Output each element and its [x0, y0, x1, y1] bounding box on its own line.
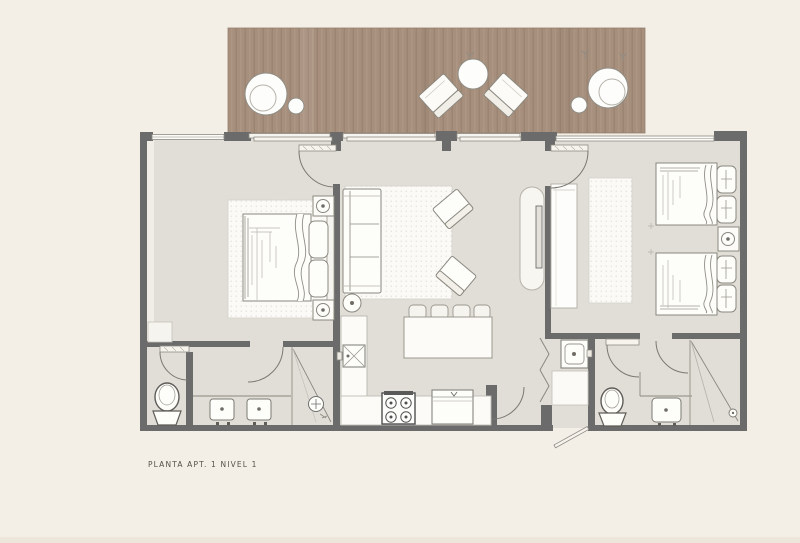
wall-tv — [536, 206, 542, 268]
dining-table — [404, 317, 492, 358]
double-bed — [243, 214, 334, 302]
kitchen-cabinet — [432, 390, 473, 424]
washing-machine — [561, 340, 592, 368]
pillow — [717, 166, 736, 193]
floor-plan-drawing — [0, 0, 800, 543]
page-edge — [0, 537, 800, 543]
linen-closet — [148, 322, 172, 342]
floor-plan: PLANTA APT. 1 NIVEL 1 — [0, 0, 800, 543]
pillow — [309, 260, 328, 297]
floor-lamp — [343, 294, 361, 312]
toilet — [153, 383, 181, 425]
bedroom-right-rug — [589, 178, 632, 303]
deck-table-right — [588, 68, 628, 108]
deck-terrace — [228, 28, 645, 133]
utility-shelf — [552, 371, 588, 405]
deck-stool-right — [571, 97, 587, 113]
stove — [382, 391, 415, 424]
window-left-bedroom — [152, 135, 224, 140]
sliding-door-living-1 — [343, 134, 436, 142]
plan-caption: PLANTA APT. 1 NIVEL 1 — [148, 460, 258, 469]
pillow — [309, 221, 328, 258]
deck-side-table — [458, 59, 488, 89]
sofa — [343, 189, 381, 293]
built-in-closet — [551, 184, 577, 308]
pillow — [717, 196, 736, 223]
window-right-bedroom — [556, 136, 714, 141]
entry-door — [554, 427, 589, 448]
sliding-door-living-2 — [457, 134, 521, 142]
nightstand-between-beds — [718, 227, 739, 251]
deck-stool-left — [288, 98, 304, 114]
nightstand-top — [313, 196, 334, 216]
deck-dining-table-left — [245, 73, 287, 115]
sliding-door-bedroom-left — [249, 134, 332, 142]
nightstand-bottom — [313, 300, 334, 320]
pillow — [717, 256, 736, 283]
pillow — [717, 285, 736, 312]
